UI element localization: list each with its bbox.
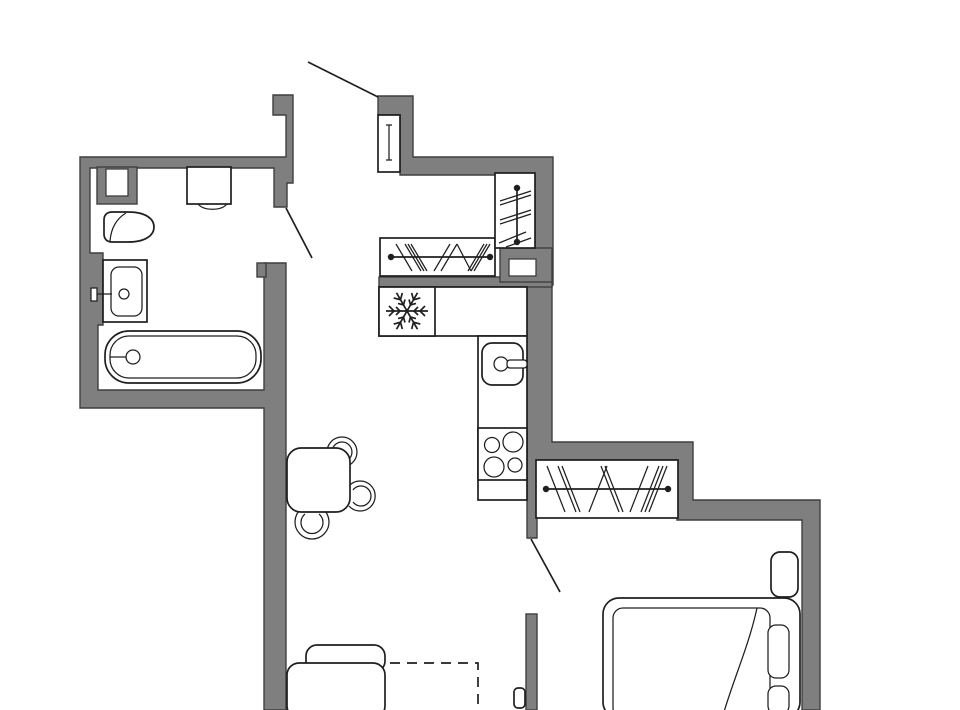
stove	[478, 428, 527, 480]
dining-set	[287, 437, 375, 539]
kitchen	[379, 287, 527, 500]
wall-jamb-bathroom	[257, 263, 266, 277]
floor-plan-canvas	[0, 0, 960, 710]
duct-shaft-kitchen-opening	[509, 259, 536, 276]
wardrobe-hall	[380, 238, 495, 276]
refrigerator	[379, 287, 435, 336]
bedroom-door-swing	[531, 539, 560, 592]
toilet	[104, 212, 154, 242]
pillow	[768, 686, 789, 710]
planned-zone-dashed	[390, 663, 478, 710]
entrance-door-leaf	[378, 115, 400, 172]
entrance-door-swing	[308, 62, 378, 97]
bed	[603, 598, 800, 710]
floor-plan-page: One-room apartment floor plan	[0, 0, 960, 710]
bedroom	[536, 460, 800, 710]
dining-table	[287, 448, 350, 512]
bathroom-door-swing	[286, 208, 312, 258]
pillow	[768, 625, 789, 678]
wardrobe-bedroom	[536, 460, 678, 518]
chair	[349, 481, 375, 511]
kitchen-sink	[482, 343, 527, 385]
duct-shaft-bathroom-opening	[106, 169, 128, 196]
sofa-body	[287, 663, 385, 710]
wardrobe-side	[495, 173, 535, 248]
chair	[295, 509, 329, 539]
bathtub	[105, 331, 261, 383]
wall-stub-bottom	[526, 614, 537, 710]
washing-machine	[187, 167, 231, 209]
nightstand	[771, 552, 798, 597]
mattress	[613, 608, 770, 710]
tv	[514, 688, 525, 708]
sofa	[287, 645, 385, 710]
